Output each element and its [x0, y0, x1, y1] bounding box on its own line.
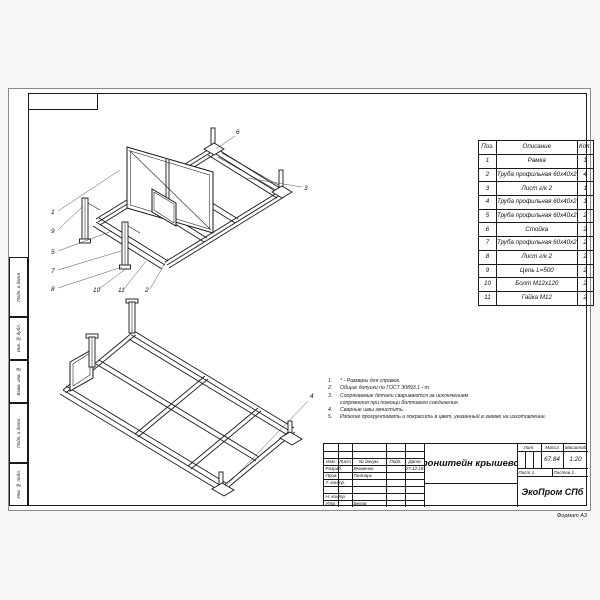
callout-number: 4 [310, 393, 314, 400]
table-row: 9Цепь L=5002 [479, 264, 594, 278]
callout-number: 2 [144, 287, 149, 294]
tb-mass-label: Масса [541, 444, 563, 451]
tb-razrab-label: Разраб. [324, 465, 352, 472]
col-header-pos: Поз. [479, 141, 497, 155]
cell-pos: 9 [479, 264, 497, 278]
tb-prov-name: Гонтарь [352, 472, 386, 479]
note-number: 2. [328, 385, 340, 392]
tb-col-list: Лист [338, 458, 352, 465]
cell-pos: 1 [479, 155, 497, 169]
tb-tkontr-label: Т. контр. [324, 479, 352, 486]
note-text: Изделие прогрунтовать и покрасить в цвет… [340, 414, 560, 421]
top-isometric-view: 1 9 5 7 8 10 11 2 6 3 [51, 128, 308, 294]
cell-pos: 5 [479, 209, 497, 223]
cell-desc: Рамка [497, 155, 578, 169]
cell-qty: 1 [577, 182, 593, 196]
cell-qty: 4 [577, 168, 593, 182]
sheet-number: Лист 1 [517, 468, 552, 476]
cell-pos: 10 [479, 278, 497, 292]
note-number: 1. [328, 378, 340, 385]
sheet-total: Листов 1 [552, 468, 588, 476]
note-line: 5.Изделие прогрунтовать и покрасить в цв… [328, 414, 560, 421]
tb-scale-label: Масштаб [563, 444, 588, 451]
table-row: 2Труба профильная 60х40х24 [479, 168, 594, 182]
cell-pos: 11 [479, 291, 497, 305]
cell-qty: 2 [577, 291, 593, 305]
table-row: 6Стойка2 [479, 223, 594, 237]
format-note: Формат А3 [447, 513, 587, 519]
parts-table-header-row: Поз. Описание Кол. [479, 141, 594, 155]
cell-pos: 4 [479, 196, 497, 210]
callout-number: 6 [236, 129, 240, 136]
col-header-desc: Описание [497, 141, 578, 155]
tb-col-izm: Изм. [324, 458, 338, 465]
cell-qty: 2 [577, 250, 593, 264]
cell-pos: 6 [479, 223, 497, 237]
company-name: ЭкоПром СПб [517, 476, 588, 507]
cell-desc: Лист г/к 2 [497, 182, 578, 196]
cell-desc: Болт М12х120 [497, 278, 578, 292]
note-line: 3.Сопрягаемые детали свариваются за искл… [328, 393, 560, 408]
mass-value: 67.84 [541, 451, 563, 468]
scale-value: 1:20 [563, 451, 588, 468]
callout-number: 10 [93, 287, 101, 294]
cell-desc: Труба профильная 60х40х2 [497, 168, 578, 182]
table-row: 1Рамка1 [479, 155, 594, 169]
callout-number: 7 [51, 268, 55, 275]
cell-desc: Труба профильная 60х40х2 [497, 196, 578, 210]
cell-pos: 2 [479, 168, 497, 182]
cell-qty: 2 [577, 223, 593, 237]
document-title: Кронштейн крышевой [424, 444, 517, 483]
tb-razrab-name: Яковенко [352, 465, 386, 472]
note-number: 4. [328, 407, 340, 414]
note-text: Сопрягаемые детали свариваются за исключ… [340, 393, 492, 408]
table-row: 8Лист г/к 22 [479, 250, 594, 264]
note-line: 2.Общие допуски по ГОСТ 30893.1 - m. [328, 385, 560, 392]
cell-qty: 2 [577, 264, 593, 278]
table-row: 7Труба профильная 60х40х22 [479, 237, 594, 251]
col-header-qty: Кол. [577, 141, 593, 155]
cell-pos: 8 [479, 250, 497, 264]
tb-utv-name: Белов [352, 500, 386, 507]
cell-desc: Гайка М12 [497, 291, 578, 305]
screenshot-root: { "page": { "format_note": "Формат А3" }… [0, 0, 600, 600]
cell-qty: 2 [577, 278, 593, 292]
cell-desc: Цепь L=500 [497, 264, 578, 278]
tb-utv-label: Утв. [324, 500, 352, 507]
note-text: * - Размеры для справок. [340, 378, 560, 385]
tb-col-podp: Подп. [386, 458, 405, 465]
table-row: 5Труба профильная 60х40х22 [479, 209, 594, 223]
callout-number: 8 [51, 286, 55, 293]
title-block: Изм. Лист № докум. Подп. Дата Разраб. Як… [323, 443, 587, 506]
callout-number: 3 [304, 185, 308, 192]
parts-table: Поз. Описание Кол. 1Рамка1 2Труба профил… [478, 140, 594, 306]
note-line: 1.* - Размеры для справок. [328, 378, 560, 385]
callout-number: 1 [51, 209, 55, 216]
table-row: 10Болт М12х1202 [479, 278, 594, 292]
tb-razrab-date: 27.12.18 [405, 465, 424, 472]
cell-qty: 1 [577, 196, 593, 210]
tb-nkontr-label: Н. контр. [324, 493, 352, 500]
callout-number: 5 [51, 249, 55, 256]
cell-pos: 3 [479, 182, 497, 196]
tb-prov-label: Пров. [324, 472, 352, 479]
callout-number: 9 [51, 228, 55, 235]
tb-lit-label: Лит. [517, 444, 541, 451]
table-row: 3Лист г/к 21 [479, 182, 594, 196]
table-row: 4Труба профильная 60х40х21 [479, 196, 594, 210]
cell-desc: Труба профильная 60х40х2 [497, 209, 578, 223]
cell-desc: Труба профильная 60х40х2 [497, 237, 578, 251]
note-number: 5. [328, 414, 340, 421]
cell-qty: 2 [577, 237, 593, 251]
note-number: 3. [328, 393, 340, 408]
cell-pos: 7 [479, 237, 497, 251]
cell-desc: Лист г/к 2 [497, 250, 578, 264]
cell-qty: 2 [577, 209, 593, 223]
tb-col-doc: № докум. [352, 458, 386, 465]
bottom-isometric-view: 4 [60, 299, 314, 496]
technical-notes: 1.* - Размеры для справок. 2.Общие допус… [328, 378, 560, 422]
tb-col-data: Дата [405, 458, 424, 465]
table-row: 11Гайка М122 [479, 291, 594, 305]
note-text: Общие допуски по ГОСТ 30893.1 - m. [340, 385, 560, 392]
cell-desc: Стойка [497, 223, 578, 237]
cell-qty: 1 [577, 155, 593, 169]
callout-number: 11 [118, 287, 125, 294]
